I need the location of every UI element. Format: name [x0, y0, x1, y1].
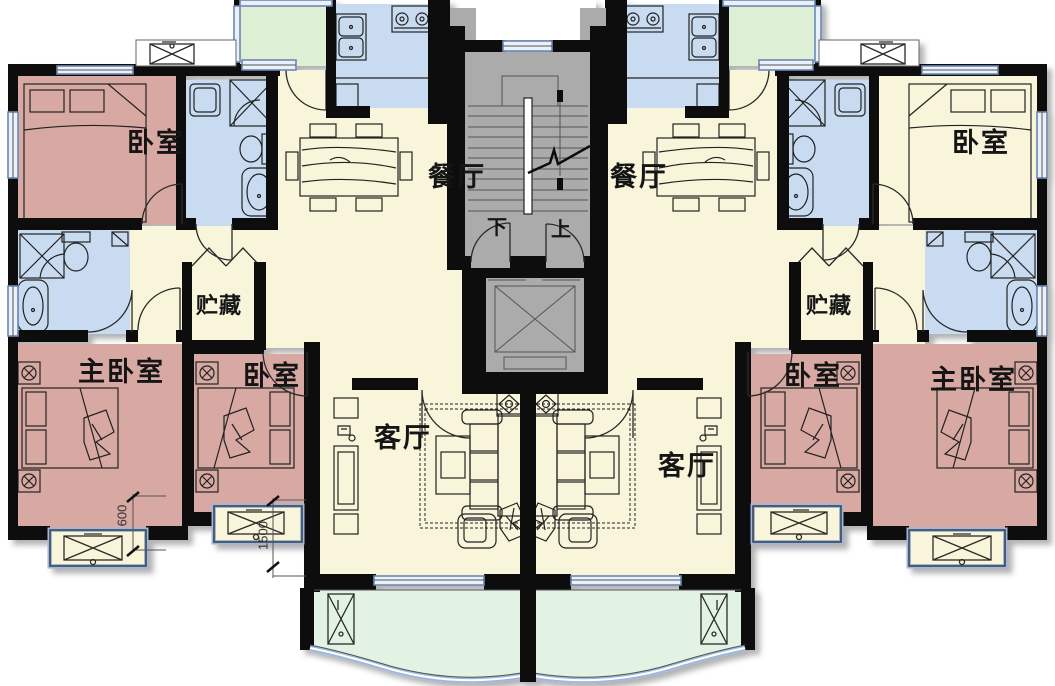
label-bedroom-2-right: 卧室	[784, 354, 842, 393]
label-living-left: 客厅	[374, 416, 432, 455]
dimension-1500: 1500	[256, 511, 271, 561]
dimension-600: 600	[115, 494, 130, 538]
label-master-bedroom-right: 主卧室	[930, 358, 1017, 397]
label-stairs-down: 下	[487, 211, 507, 240]
label-storage-right: 贮藏	[806, 288, 852, 320]
floor-plan: 卧室 卧室 主卧室 卧室 卧室 主卧室 贮藏 贮藏 餐厅 餐厅 客厅 客厅 下 …	[0, 0, 1055, 686]
floor-plan-drawing	[0, 0, 1055, 686]
label-bedroom-top-right: 卧室	[952, 121, 1010, 160]
label-master-bedroom-left: 主卧室	[78, 350, 165, 389]
label-bedroom-top-left: 卧室	[127, 121, 185, 160]
label-living-right: 客厅	[658, 444, 716, 483]
label-dining-right: 餐厅	[610, 155, 668, 194]
label-bedroom-2-left: 卧室	[243, 354, 301, 393]
label-storage-left: 贮藏	[196, 288, 242, 320]
label-stairs-up: 上	[551, 213, 571, 242]
label-dining-left: 餐厅	[428, 155, 486, 194]
